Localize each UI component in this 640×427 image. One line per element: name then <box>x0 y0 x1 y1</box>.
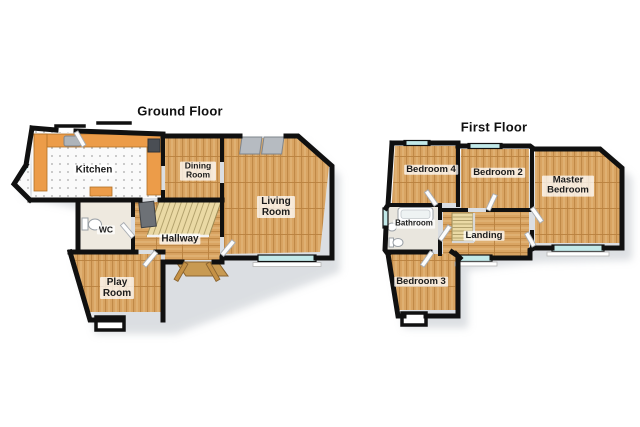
room-label-hallway: Hallway <box>159 234 200 245</box>
room-label-dining-room: Dining Room <box>180 162 216 181</box>
room-label-living-room: Living Room <box>257 196 295 218</box>
master-bedroom-window-sill <box>547 252 609 256</box>
master-bedroom-floor <box>535 151 620 243</box>
room-label-bathroom: Bathroom <box>393 220 435 229</box>
bedroom-4-window <box>404 141 430 146</box>
first-floor-title: First Floor <box>461 120 527 135</box>
room-label-play-room: Play Room <box>100 277 134 299</box>
room-label-bedroom-3: Bedroom 3 <box>394 277 448 287</box>
room-label-landing: Landing <box>464 231 505 241</box>
staircase <box>147 199 222 236</box>
bedroom-2-window <box>468 144 502 149</box>
living-room-window <box>258 255 316 262</box>
ground-floor-title: Ground Floor <box>137 104 222 119</box>
room-label-master-bedroom: Master Bedroom <box>542 176 594 197</box>
room-label-wc: WC <box>97 225 115 234</box>
landing-window <box>460 255 492 262</box>
room-label-bedroom-2: Bedroom 2 <box>471 168 525 178</box>
cooktop <box>148 139 160 152</box>
room-label-bedroom-4: Bedroom 4 <box>404 165 458 175</box>
floor-plan-drawing <box>0 0 640 427</box>
master-bedroom-window <box>552 245 604 252</box>
living-room-window-sill <box>253 263 321 267</box>
bathroom-toilet <box>389 238 403 247</box>
bathroom-window <box>383 208 388 228</box>
hall-cupboard <box>139 201 157 227</box>
floor-plan-image: Ground Floor First Floor Kitchen Dining … <box>0 0 640 427</box>
landing-window-sill <box>455 262 497 266</box>
room-label-kitchen: Kitchen <box>74 165 115 176</box>
